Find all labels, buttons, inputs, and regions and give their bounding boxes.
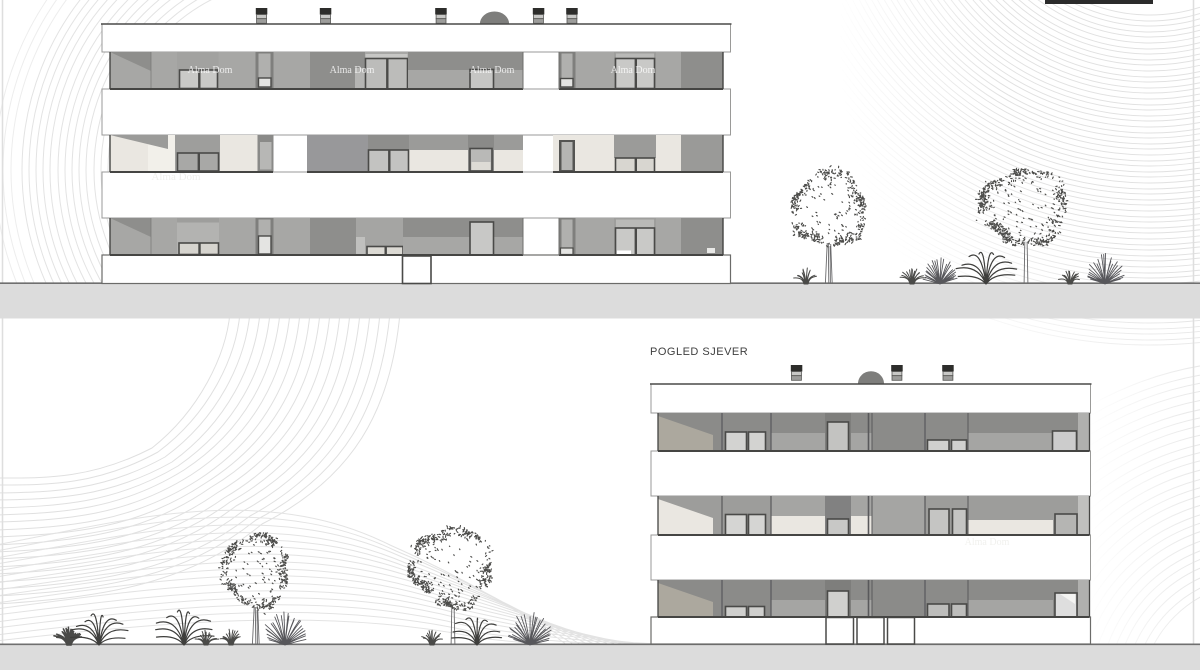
svg-text:Alma Dom: Alma Dom — [965, 537, 1010, 548]
svg-text:Alma Dom: Alma Dom — [188, 65, 233, 76]
svg-text:Alma Dom: Alma Dom — [611, 65, 656, 76]
svg-text:Alma Dom: Alma Dom — [330, 65, 375, 76]
svg-text:Alma Dom: Alma Dom — [151, 171, 201, 183]
svg-text:POGLED SJEVER: POGLED SJEVER — [650, 346, 748, 358]
svg-text:Alma Dom: Alma Dom — [470, 65, 515, 76]
